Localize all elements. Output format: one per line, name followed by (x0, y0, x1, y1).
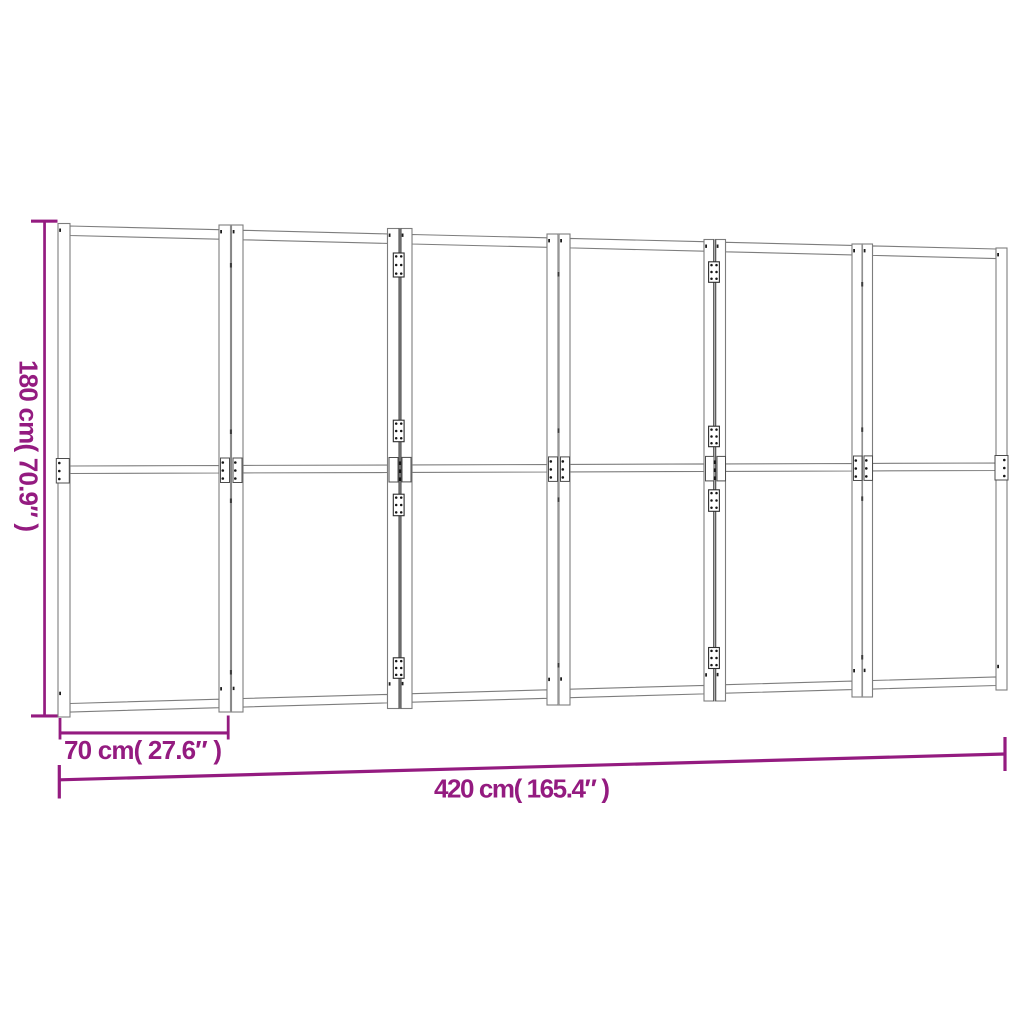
svg-text:420 cm( 165.4″ ): 420 cm( 165.4″ ) (434, 774, 610, 804)
svg-text:180 cm( 70.9″ ): 180 cm( 70.9″ ) (14, 360, 44, 532)
svg-text:70 cm( 27.6″ ): 70 cm( 27.6″ ) (64, 735, 222, 765)
